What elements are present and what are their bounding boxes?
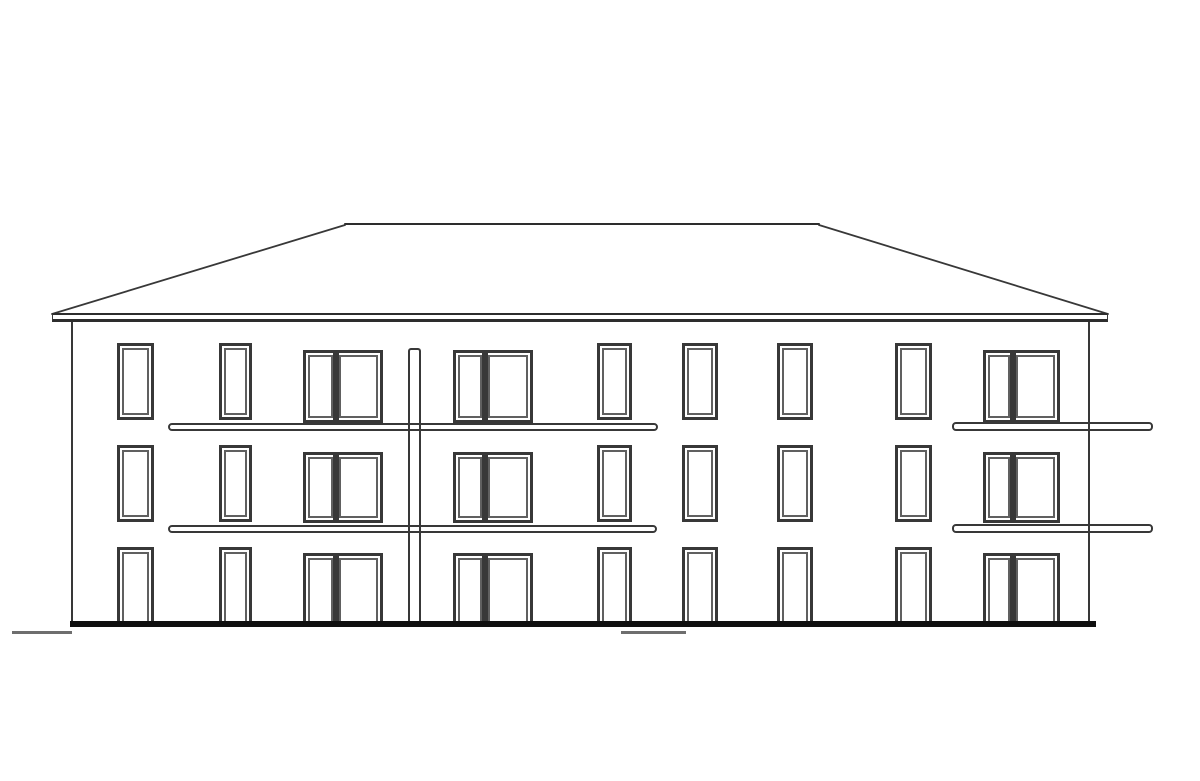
window-pane-left [458, 355, 482, 418]
double-window-floor2 [983, 452, 1060, 523]
window-floor1 [777, 343, 813, 420]
window-mullion [1010, 353, 1016, 420]
window-mullion [1010, 455, 1016, 520]
roof-hip-right-line [819, 225, 1108, 314]
window-inner-frame [782, 450, 808, 517]
window-inner-frame [687, 348, 713, 415]
window-pane-left [308, 558, 333, 623]
double-window-floor3 [453, 553, 533, 623]
window-pane-right [1016, 558, 1055, 623]
window-floor2 [777, 445, 813, 522]
double-window-floor1 [453, 350, 533, 423]
window-floor1 [895, 343, 932, 420]
window-pane-left [308, 457, 333, 518]
balcony-slab [952, 524, 1153, 533]
window-floor1 [682, 343, 718, 420]
window-pane-left [988, 457, 1010, 518]
window-pane-left [988, 355, 1010, 418]
window-mullion [1010, 556, 1016, 623]
window-pane-left [308, 355, 333, 418]
eaves-band [52, 313, 1108, 322]
window-mullion [333, 455, 339, 520]
window-inner-frame [122, 450, 149, 517]
window-inner-frame [782, 348, 808, 415]
elevation-drawing-canvas [0, 0, 1200, 781]
window-pane-right [339, 355, 378, 418]
window-pane-left [458, 558, 482, 623]
double-window-floor3 [303, 553, 383, 623]
window-pane-right [1016, 355, 1055, 418]
window-floor2 [895, 445, 932, 522]
window-inner-frame [900, 552, 927, 623]
window-floor3 [219, 547, 252, 623]
window-pane-right [339, 558, 378, 623]
window-pane-left [458, 457, 482, 518]
double-window-floor2 [303, 452, 383, 523]
window-mullion [482, 455, 488, 520]
window-inner-frame [602, 450, 627, 517]
window-pane-left [988, 558, 1010, 623]
window-floor3 [777, 547, 813, 623]
balcony-slab [168, 423, 658, 431]
window-floor3 [895, 547, 932, 623]
double-window-floor1 [983, 350, 1060, 423]
downpipe [408, 348, 421, 622]
window-pane-right [488, 558, 528, 623]
window-pane-right [488, 457, 528, 518]
window-inner-frame [900, 450, 927, 517]
double-window-floor1 [303, 350, 383, 423]
window-inner-frame [687, 450, 713, 517]
window-inner-frame [224, 552, 247, 623]
double-window-floor2 [453, 452, 533, 523]
window-floor2 [117, 445, 154, 522]
window-mullion [333, 556, 339, 623]
window-floor3 [682, 547, 718, 623]
window-floor2 [219, 445, 252, 522]
window-inner-frame [782, 552, 808, 623]
grade-mark-line [621, 631, 686, 634]
roof-hip-left-line [52, 225, 345, 314]
window-inner-frame [224, 450, 247, 517]
window-pane-right [339, 457, 378, 518]
window-pane-right [1016, 457, 1055, 518]
window-floor3 [117, 547, 154, 623]
window-inner-frame [122, 348, 149, 415]
balcony-slab [952, 422, 1153, 431]
window-floor3 [597, 547, 632, 623]
window-floor2 [597, 445, 632, 522]
window-inner-frame [602, 348, 627, 415]
window-mullion [333, 353, 339, 420]
window-mullion [482, 353, 488, 420]
window-floor1 [117, 343, 154, 420]
wall-right-line [1088, 322, 1090, 622]
ground-line [70, 621, 1096, 627]
window-pane-right [488, 355, 528, 418]
window-inner-frame [224, 348, 247, 415]
window-floor1 [597, 343, 632, 420]
window-floor2 [682, 445, 718, 522]
wall-left-line [71, 322, 73, 622]
window-inner-frame [687, 552, 713, 623]
window-inner-frame [900, 348, 927, 415]
double-window-floor3 [983, 553, 1060, 623]
window-floor1 [219, 343, 252, 420]
window-inner-frame [122, 552, 149, 623]
balcony-slab [168, 525, 657, 533]
window-inner-frame [602, 552, 627, 623]
window-mullion [482, 556, 488, 623]
grade-mark-line [12, 631, 72, 634]
